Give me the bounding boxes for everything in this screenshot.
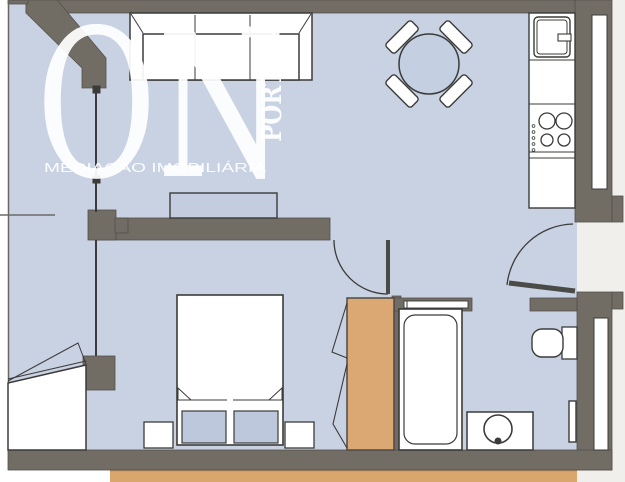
wall-bay-stub bbox=[83, 356, 115, 390]
toilet-bowl bbox=[532, 329, 563, 357]
sliding-door-panel bbox=[404, 301, 468, 308]
kitchen bbox=[529, 13, 575, 208]
floorplan-image: ON PORT – – MEDIAÇÃO IMOBILIÁRIA bbox=[0, 0, 625, 482]
nightstand-left bbox=[144, 422, 173, 448]
wall-right-step-upper bbox=[612, 196, 623, 222]
watermark-tagline: MEDIAÇÃO IMOBILIÁRIA bbox=[44, 160, 266, 175]
watermark-brand-vertical: PORT – – bbox=[257, 30, 288, 142]
towel-radiator bbox=[569, 401, 576, 442]
bedroom-furniture bbox=[144, 295, 394, 450]
window-kitchen bbox=[592, 15, 607, 189]
nightstand-right bbox=[285, 422, 314, 448]
wall-bathroom-top-right bbox=[530, 298, 577, 311]
kitchen-counter bbox=[529, 13, 575, 208]
dining-table bbox=[399, 34, 459, 94]
entrance-recess-bg bbox=[577, 222, 625, 293]
bathtub bbox=[399, 309, 462, 450]
window-bathroom bbox=[594, 318, 608, 450]
sink-faucet bbox=[558, 34, 571, 41]
wall-balcony-top-line bbox=[8, 0, 28, 4]
terrace-strip bbox=[110, 470, 577, 482]
floorplan-svg: ON PORT – – MEDIAÇÃO IMOBILIÁRIA bbox=[0, 0, 625, 482]
wall-bottom bbox=[8, 450, 612, 470]
pillow-right bbox=[234, 411, 278, 443]
sliding-bathroom-door bbox=[404, 301, 468, 308]
outside-bottom-right-bg bbox=[577, 470, 612, 482]
washbasin-tap bbox=[495, 438, 502, 445]
pillow-left bbox=[182, 411, 226, 443]
wall-right-step-lower bbox=[612, 292, 623, 309]
watermark-brand-main: ON bbox=[36, 0, 286, 225]
toilet-tank bbox=[562, 327, 577, 359]
wardrobe bbox=[347, 298, 394, 450]
watermark: ON PORT – – MEDIAÇÃO IMOBILIÁRIA bbox=[36, 0, 288, 225]
